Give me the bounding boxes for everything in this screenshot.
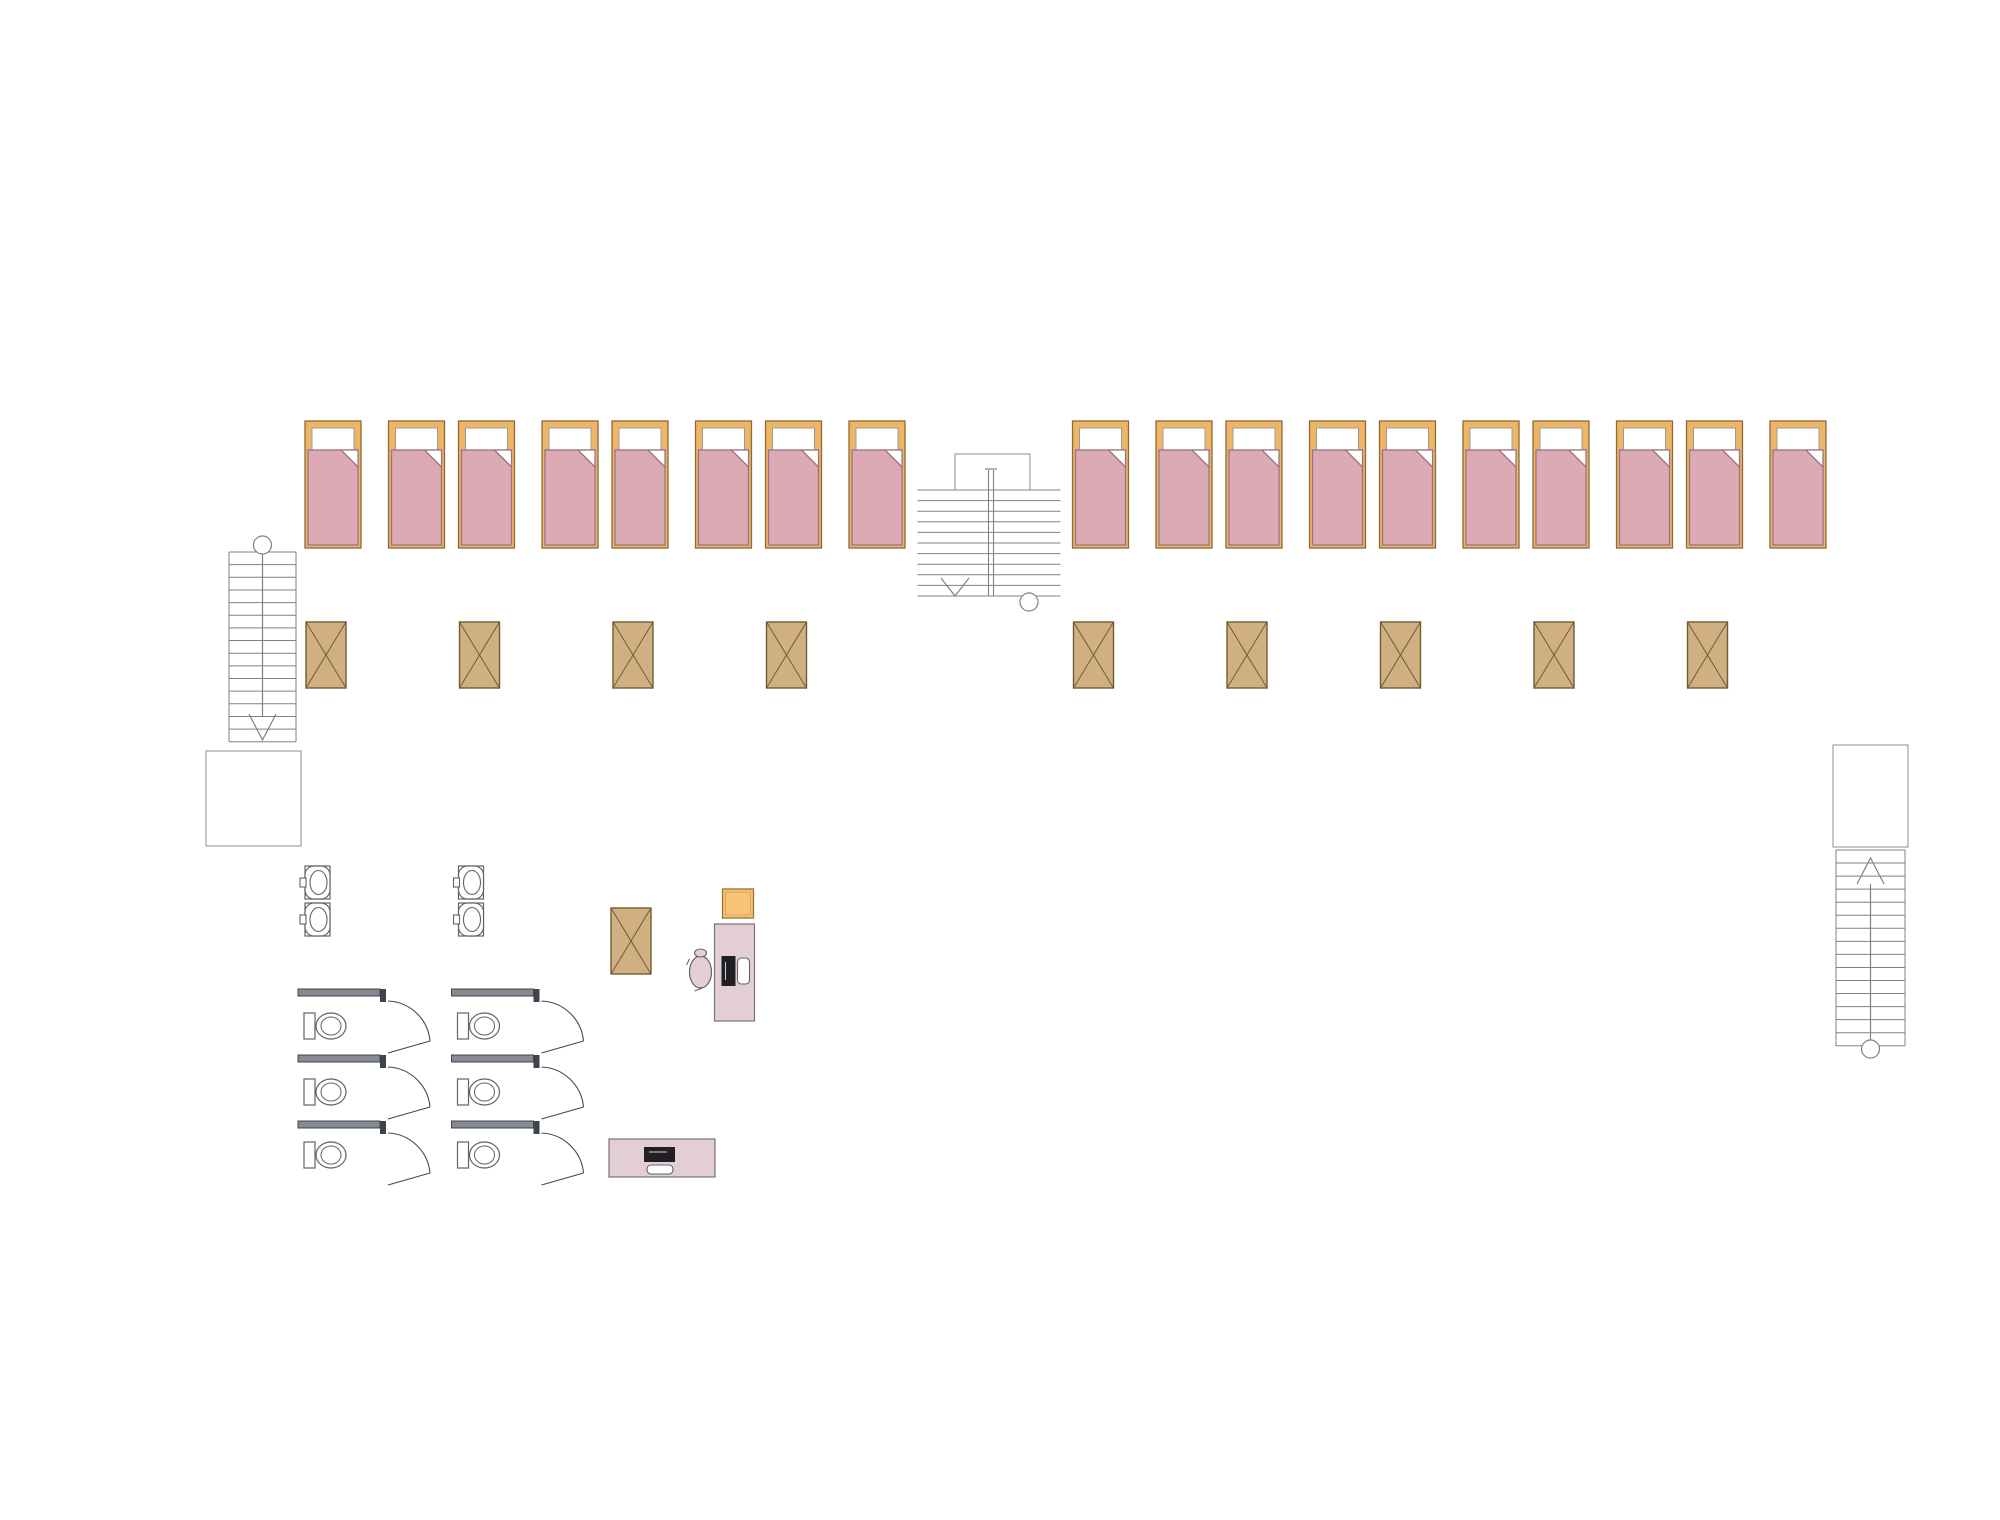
bed-symbol bbox=[459, 421, 515, 548]
module-6-north-bedroom bbox=[1073, 421, 1213, 688]
monitor-symbol bbox=[644, 1147, 675, 1162]
bed-symbol bbox=[612, 421, 668, 548]
bed-symbol bbox=[1770, 421, 1826, 548]
bed-symbol bbox=[696, 421, 752, 548]
bed-symbol bbox=[849, 421, 905, 548]
washbasin-symbol bbox=[454, 903, 484, 936]
toilet-symbol bbox=[458, 1142, 500, 1168]
bed-symbol bbox=[1463, 421, 1519, 548]
bed-symbol bbox=[1617, 421, 1673, 548]
bed-symbol bbox=[1073, 421, 1129, 548]
wardrobe-symbol bbox=[611, 908, 651, 974]
module-3-south-workroom bbox=[609, 889, 755, 1177]
module-2-south-sanitary bbox=[452, 866, 584, 1185]
toilet-symbol bbox=[458, 1079, 500, 1105]
staircase-symbol bbox=[918, 454, 1061, 611]
bed-symbol bbox=[766, 421, 822, 548]
toilet-symbol bbox=[304, 1142, 346, 1168]
toilet-symbol bbox=[458, 1013, 500, 1039]
wardrobe-symbol bbox=[1688, 622, 1728, 688]
keyboard-symbol bbox=[647, 1165, 673, 1174]
floor-plan-page bbox=[0, 0, 2000, 1520]
bed-symbol bbox=[1156, 421, 1212, 548]
monitor-symbol bbox=[722, 956, 736, 986]
external-staircase-east bbox=[1833, 745, 1908, 1058]
bed-symbol bbox=[305, 421, 361, 548]
external-staircase-west bbox=[206, 536, 301, 846]
office-chair-symbol bbox=[687, 949, 712, 991]
washbasin-symbol bbox=[300, 866, 330, 899]
toilet-symbol bbox=[304, 1013, 346, 1039]
module-8-north-bedroom bbox=[1380, 421, 1520, 688]
bed-symbol bbox=[1687, 421, 1743, 548]
module-1-south-sanitary bbox=[298, 866, 430, 1185]
stool-symbol bbox=[723, 889, 754, 918]
toilet-symbol bbox=[304, 1079, 346, 1105]
bed-symbol bbox=[1380, 421, 1436, 548]
module-4-north-bedroom bbox=[766, 421, 906, 688]
module-9-north-bedroom bbox=[1533, 421, 1673, 688]
wardrobe-symbol bbox=[1227, 622, 1267, 688]
module-10-north-bedroom bbox=[1687, 421, 1827, 688]
module-7-north-bedroom bbox=[1226, 421, 1366, 688]
wardrobe-symbol bbox=[1074, 622, 1114, 688]
keyboard-symbol bbox=[738, 958, 750, 984]
bed-symbol bbox=[1310, 421, 1366, 548]
module-5-north-staircase bbox=[918, 454, 1061, 611]
wardrobe-symbol bbox=[306, 622, 346, 688]
washbasin-symbol bbox=[454, 866, 484, 899]
bed-symbol bbox=[542, 421, 598, 548]
module-3-north-bedroom bbox=[612, 421, 752, 688]
wardrobe-symbol bbox=[1534, 622, 1574, 688]
bed-symbol bbox=[389, 421, 445, 548]
wardrobe-symbol bbox=[613, 622, 653, 688]
wardrobe-symbol bbox=[1381, 622, 1421, 688]
floor-plan-drawing bbox=[0, 0, 2000, 1520]
module-2-north-bedroom bbox=[459, 421, 599, 688]
wardrobe-symbol bbox=[767, 622, 807, 688]
bed-symbol bbox=[1533, 421, 1589, 548]
module-1-north-bedroom bbox=[305, 421, 445, 688]
wardrobe-symbol bbox=[460, 622, 500, 688]
bed-symbol bbox=[1226, 421, 1282, 548]
washbasin-symbol bbox=[300, 903, 330, 936]
